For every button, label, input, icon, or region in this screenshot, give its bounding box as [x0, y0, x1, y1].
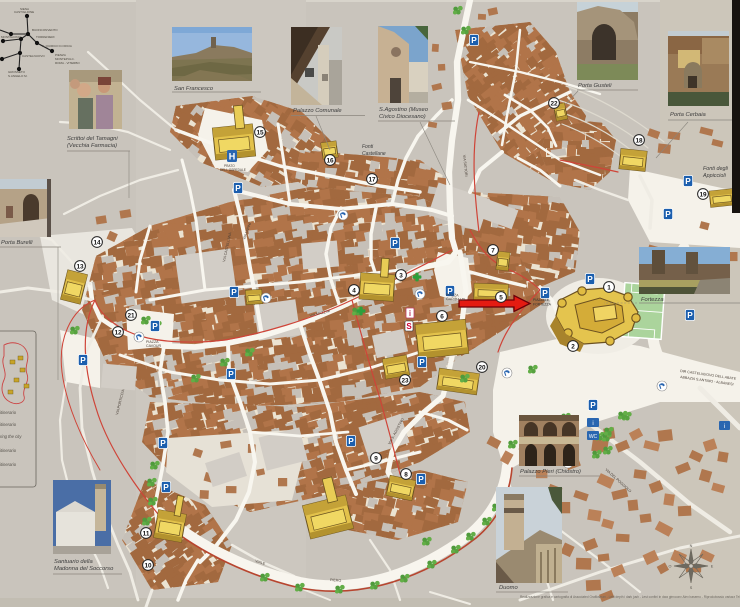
svg-text:10: 10 — [144, 563, 152, 570]
svg-text:H: H — [229, 151, 236, 161]
svg-text:Palazzo Comunale: Palazzo Comunale — [293, 108, 342, 114]
svg-text:P: P — [392, 239, 398, 248]
svg-text:4: 4 — [352, 288, 356, 295]
svg-text:S.ANGELO M.: S.ANGELO M. — [8, 74, 28, 78]
svg-text:Porta Burelli: Porta Burelli — [1, 240, 33, 246]
svg-text:(Vecchia Farmacia): (Vecchia Farmacia) — [67, 143, 117, 149]
svg-text:16: 16 — [326, 158, 334, 165]
svg-text:Castellane: Castellane — [362, 151, 386, 157]
svg-text:i: i — [724, 424, 725, 430]
svg-text:P: P — [160, 439, 166, 448]
svg-text:9: 9 — [374, 456, 378, 463]
svg-text:i: i — [592, 421, 593, 427]
svg-text:1: 1 — [607, 285, 611, 292]
svg-text:itinerario: itinerario — [0, 448, 17, 453]
svg-text:14: 14 — [93, 240, 101, 247]
svg-text:P: P — [687, 311, 693, 320]
svg-text:12: 12 — [114, 330, 122, 337]
svg-text:Duomo: Duomo — [499, 585, 518, 591]
svg-text:P: P — [418, 475, 424, 484]
svg-text:Madonna del Soccorso: Madonna del Soccorso — [54, 566, 114, 572]
svg-text:P: P — [152, 322, 158, 331]
svg-text:P: P — [587, 275, 593, 284]
svg-text:15: 15 — [256, 130, 264, 137]
svg-text:Civico Diocesano): Civico Diocesano) — [379, 114, 426, 120]
svg-text:5: 5 — [499, 295, 503, 302]
svg-text:Fonti degli: Fonti degli — [703, 166, 729, 172]
svg-text:Fortezza: Fortezza — [641, 297, 664, 303]
svg-text:21: 21 — [127, 313, 135, 320]
svg-text:N: N — [690, 544, 693, 548]
svg-text:Palazzo Pieri (Chiostro): Palazzo Pieri (Chiostro) — [520, 469, 581, 475]
svg-text:S: S — [690, 586, 693, 590]
svg-text:P: P — [228, 370, 234, 379]
svg-text:San Francesco: San Francesco — [174, 86, 214, 92]
svg-text:P: P — [542, 289, 548, 298]
svg-text:13: 13 — [76, 264, 84, 271]
svg-text:E: E — [711, 565, 714, 569]
svg-text:P: P — [80, 356, 86, 365]
svg-text:22: 22 — [550, 101, 558, 108]
svg-text:2: 2 — [571, 344, 575, 351]
svg-text:S: S — [406, 322, 412, 331]
svg-text:P: P — [471, 36, 477, 45]
svg-text:Realizzazione grafica e cartog: Realizzazione grafica e cartografia di A… — [520, 595, 740, 599]
svg-text:ROMA - VITERBO: ROMA - VITERBO — [55, 61, 80, 65]
svg-text:CASTELNUOVO: CASTELNUOVO — [22, 54, 45, 58]
svg-text:P: P — [419, 358, 425, 367]
svg-text:Porta Gusteli: Porta Gusteli — [578, 83, 612, 89]
svg-text:P: P — [590, 401, 596, 410]
svg-text:BUONCONVENTO: BUONCONVENTO — [32, 28, 58, 32]
svg-text:GARIBALDI: GARIBALDI — [446, 297, 465, 302]
svg-text:7: 7 — [491, 248, 495, 255]
svg-text:P: P — [348, 437, 354, 446]
svg-text:itinerario: itinerario — [0, 410, 17, 415]
svg-text:3: 3 — [399, 273, 403, 280]
svg-text:S. QUIRICO D.ORCIA: S. QUIRICO D.ORCIA — [42, 44, 72, 48]
svg-text:WC: WC — [589, 434, 598, 440]
svg-text:Santuario della: Santuario della — [54, 559, 93, 565]
svg-text:FORTEZZA: FORTEZZA — [533, 303, 552, 307]
svg-text:CAVOUR: CAVOUR — [146, 344, 162, 348]
svg-text:18: 18 — [635, 138, 643, 145]
svg-text:i: i — [409, 309, 411, 318]
svg-text:17: 17 — [368, 177, 376, 184]
svg-text:ring the city: ring the city — [0, 434, 22, 439]
svg-text:Fonti: Fonti — [362, 144, 374, 150]
svg-text:19: 19 — [699, 192, 707, 199]
svg-text:P: P — [235, 184, 241, 193]
svg-text:TORRENIERI: TORRENIERI — [36, 35, 55, 39]
svg-text:23: 23 — [401, 378, 409, 385]
svg-text:PIERO: PIERO — [330, 578, 342, 583]
svg-text:itinerario: itinerario — [0, 422, 17, 427]
svg-text:11: 11 — [143, 531, 150, 538]
svg-text:P: P — [665, 210, 671, 219]
svg-text:DELL OSPEDALE: DELL OSPEDALE — [220, 168, 246, 172]
svg-text:20: 20 — [478, 365, 486, 372]
svg-text:CASTIGLIONE: CASTIGLIONE — [14, 10, 34, 14]
svg-text:Scrittoi del Tamagni: Scrittoi del Tamagni — [67, 136, 118, 142]
svg-text:S.Agostino (Museo: S.Agostino (Museo — [379, 107, 429, 113]
svg-text:P: P — [231, 288, 237, 297]
svg-text:Appiccioli: Appiccioli — [702, 173, 727, 179]
svg-text:6: 6 — [440, 314, 444, 321]
svg-text:itinerario: itinerario — [0, 462, 17, 467]
svg-text:Porta Cerbaia: Porta Cerbaia — [670, 112, 707, 118]
svg-text:O: O — [669, 565, 672, 569]
svg-text:8: 8 — [404, 472, 408, 479]
svg-text:P: P — [163, 483, 169, 492]
svg-text:P: P — [685, 177, 691, 186]
svg-text:MONTALCINO: MONTALCINO — [1, 35, 21, 39]
